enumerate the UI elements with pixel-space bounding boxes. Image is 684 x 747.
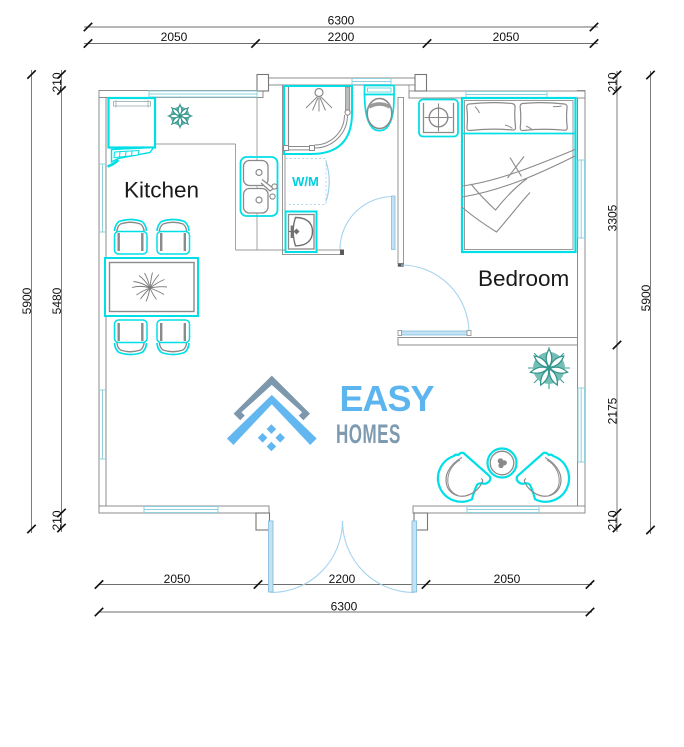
svg-text:W/M: W/M <box>292 174 319 189</box>
svg-text:2200: 2200 <box>328 30 355 44</box>
svg-text:HOMES: HOMES <box>336 419 401 449</box>
svg-text:5900: 5900 <box>639 284 653 311</box>
svg-text:EASY: EASY <box>340 378 435 419</box>
svg-text:2175: 2175 <box>606 397 620 424</box>
svg-text:2050: 2050 <box>493 30 520 44</box>
svg-text:Bedroom: Bedroom <box>478 266 569 291</box>
svg-text:210: 210 <box>606 72 620 92</box>
svg-text:210: 210 <box>50 72 64 92</box>
svg-text:210: 210 <box>606 510 620 530</box>
svg-text:2200: 2200 <box>329 572 356 586</box>
svg-text:5900: 5900 <box>20 287 34 314</box>
svg-text:2050: 2050 <box>164 572 191 586</box>
svg-text:6300: 6300 <box>331 600 358 614</box>
svg-text:210: 210 <box>50 510 64 530</box>
svg-text:3305: 3305 <box>606 204 620 231</box>
svg-text:2050: 2050 <box>494 572 521 586</box>
svg-text:Kitchen: Kitchen <box>124 178 199 203</box>
svg-text:5480: 5480 <box>50 287 64 314</box>
svg-text:6300: 6300 <box>328 14 355 28</box>
svg-text:2050: 2050 <box>161 30 188 44</box>
